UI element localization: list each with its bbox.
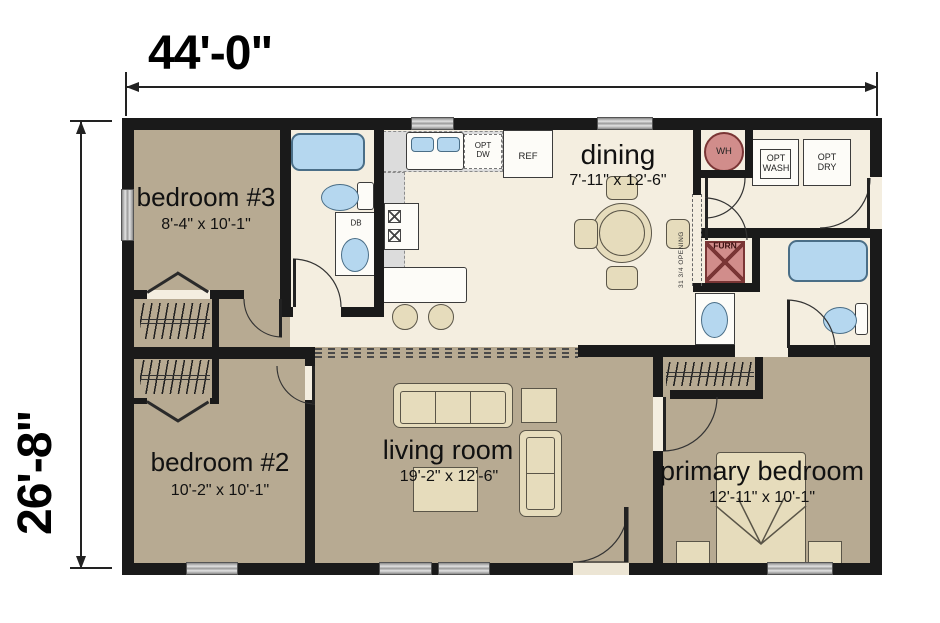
wall-bedroom3-bath (280, 130, 291, 307)
height-arrow-top (76, 121, 86, 134)
opt-dryer-label: OPT DRY (818, 153, 837, 173)
wall-furn-bottom (693, 283, 760, 292)
furnace-label: FURN (713, 241, 737, 250)
bedroom2-size: 10'-2" x 10'-1" (171, 482, 269, 500)
height-tick-bottom (70, 567, 112, 569)
height-tick-top (70, 120, 112, 122)
bathtub-1 (291, 133, 365, 171)
height-dimension-line (80, 122, 82, 568)
opening-note-label: 31 3/4 OPENING (678, 196, 685, 288)
back-door-opening (870, 177, 882, 229)
window-primary (767, 562, 833, 575)
wall-marriage-left (122, 347, 315, 359)
front-door (573, 507, 628, 562)
primary-bedroom-size: 12'-11" x 10'-1" (709, 489, 815, 507)
wall-closet2-bottom-b (210, 398, 219, 404)
window-bedroom3 (121, 189, 134, 241)
dining-size: 7'-11" x 12'-6" (569, 172, 666, 190)
living-room-size: 19'-2" x 12'-6" (400, 468, 498, 486)
sofa-divider-2 (470, 391, 471, 424)
wall-bedroom3-bottom-a (134, 290, 147, 299)
opt-washer-label: OPT WASH (763, 154, 790, 174)
cased-opening-jambs (692, 194, 702, 286)
marriage-line-dash-3 (315, 356, 578, 358)
utility-hall-door-2 (705, 198, 747, 240)
water-heater-label: WH (716, 147, 732, 157)
primary-closet-rod (666, 362, 754, 386)
bedroom3-size: 8'-4" x 10'-1" (161, 216, 251, 234)
bath2-door (787, 300, 835, 348)
width-dimension-label: 44'-0" (148, 26, 272, 81)
toilet-1-tank (357, 182, 374, 210)
wall-closet1-right (212, 290, 219, 347)
dining-chair-west (574, 219, 598, 249)
width-tick-right (876, 72, 878, 116)
front-door-opening (573, 563, 629, 575)
marriage-line-dash-1 (315, 348, 578, 350)
stool-2 (428, 304, 454, 330)
wall-bedroom2-living-a (305, 359, 315, 366)
width-dimension-line (126, 86, 878, 88)
sink-basin-right (437, 137, 460, 152)
dining-name: dining (581, 139, 656, 171)
wall-primary-closet-right (755, 357, 763, 399)
vanity-1-label: DB (350, 220, 361, 229)
bedroom2-name: bedroom #2 (151, 447, 290, 478)
wall-bedroom3-bottom-c (281, 290, 291, 299)
width-tick-left (125, 72, 127, 116)
toilet-1-bowl (321, 184, 359, 211)
wall-closet2-right (212, 359, 219, 402)
sofa-divider-1 (435, 391, 436, 424)
refrigerator-label: REF (519, 152, 538, 162)
window-dining (597, 117, 653, 130)
wall-closet2-bottom-a (134, 398, 147, 404)
window-kitchen (411, 117, 454, 130)
loveseat-divider (526, 473, 555, 474)
wall-hall-primary-a (578, 345, 735, 357)
back-door (820, 178, 870, 228)
marriage-line-dash-2 (315, 352, 578, 354)
opt-dishwasher-label: OPT DW (475, 142, 491, 160)
burner-1 (388, 210, 401, 223)
living-room-name: living room (383, 435, 514, 466)
burner-2 (388, 229, 401, 242)
height-dimension-label: 26'-8" (8, 368, 63, 578)
primary-bedroom-name: primary bedroom (660, 456, 864, 487)
wall-bedroom2-living-b (305, 400, 315, 563)
kitchen-island (375, 267, 467, 303)
floor-plan: 31 3/4 OPENING OPT DW REF DB WH OPT WASH… (0, 0, 940, 623)
dining-chair-south (606, 266, 638, 290)
window-living-2 (438, 562, 490, 575)
closet2-rod (140, 360, 210, 394)
wall-dining-utility-a (693, 130, 701, 195)
primary-bedroom-door (663, 397, 717, 451)
bedroom3-door (244, 299, 282, 337)
bath1-door (293, 259, 341, 307)
vanity-2-sink (701, 302, 728, 338)
end-table (521, 388, 557, 423)
wall-furn-tub (752, 238, 760, 292)
stool-1 (392, 304, 418, 330)
window-bedroom2 (186, 562, 238, 575)
wall-top (122, 118, 882, 130)
wall-whcloset-h (701, 170, 753, 178)
bedroom2-door (277, 366, 315, 404)
width-arrow-left (126, 82, 139, 92)
wall-living-primary-a (653, 357, 663, 397)
closet1-rod (140, 303, 210, 339)
wall-bath1-kitchen (374, 130, 384, 317)
dining-table-inner-ring (599, 210, 645, 256)
bathtub-2 (788, 240, 868, 282)
vanity-1-sink (341, 238, 369, 272)
sink-basin-left (411, 137, 434, 152)
bedroom3-name: bedroom #3 (137, 182, 276, 213)
sofa-cushions (400, 391, 506, 424)
window-living-1 (379, 562, 432, 575)
